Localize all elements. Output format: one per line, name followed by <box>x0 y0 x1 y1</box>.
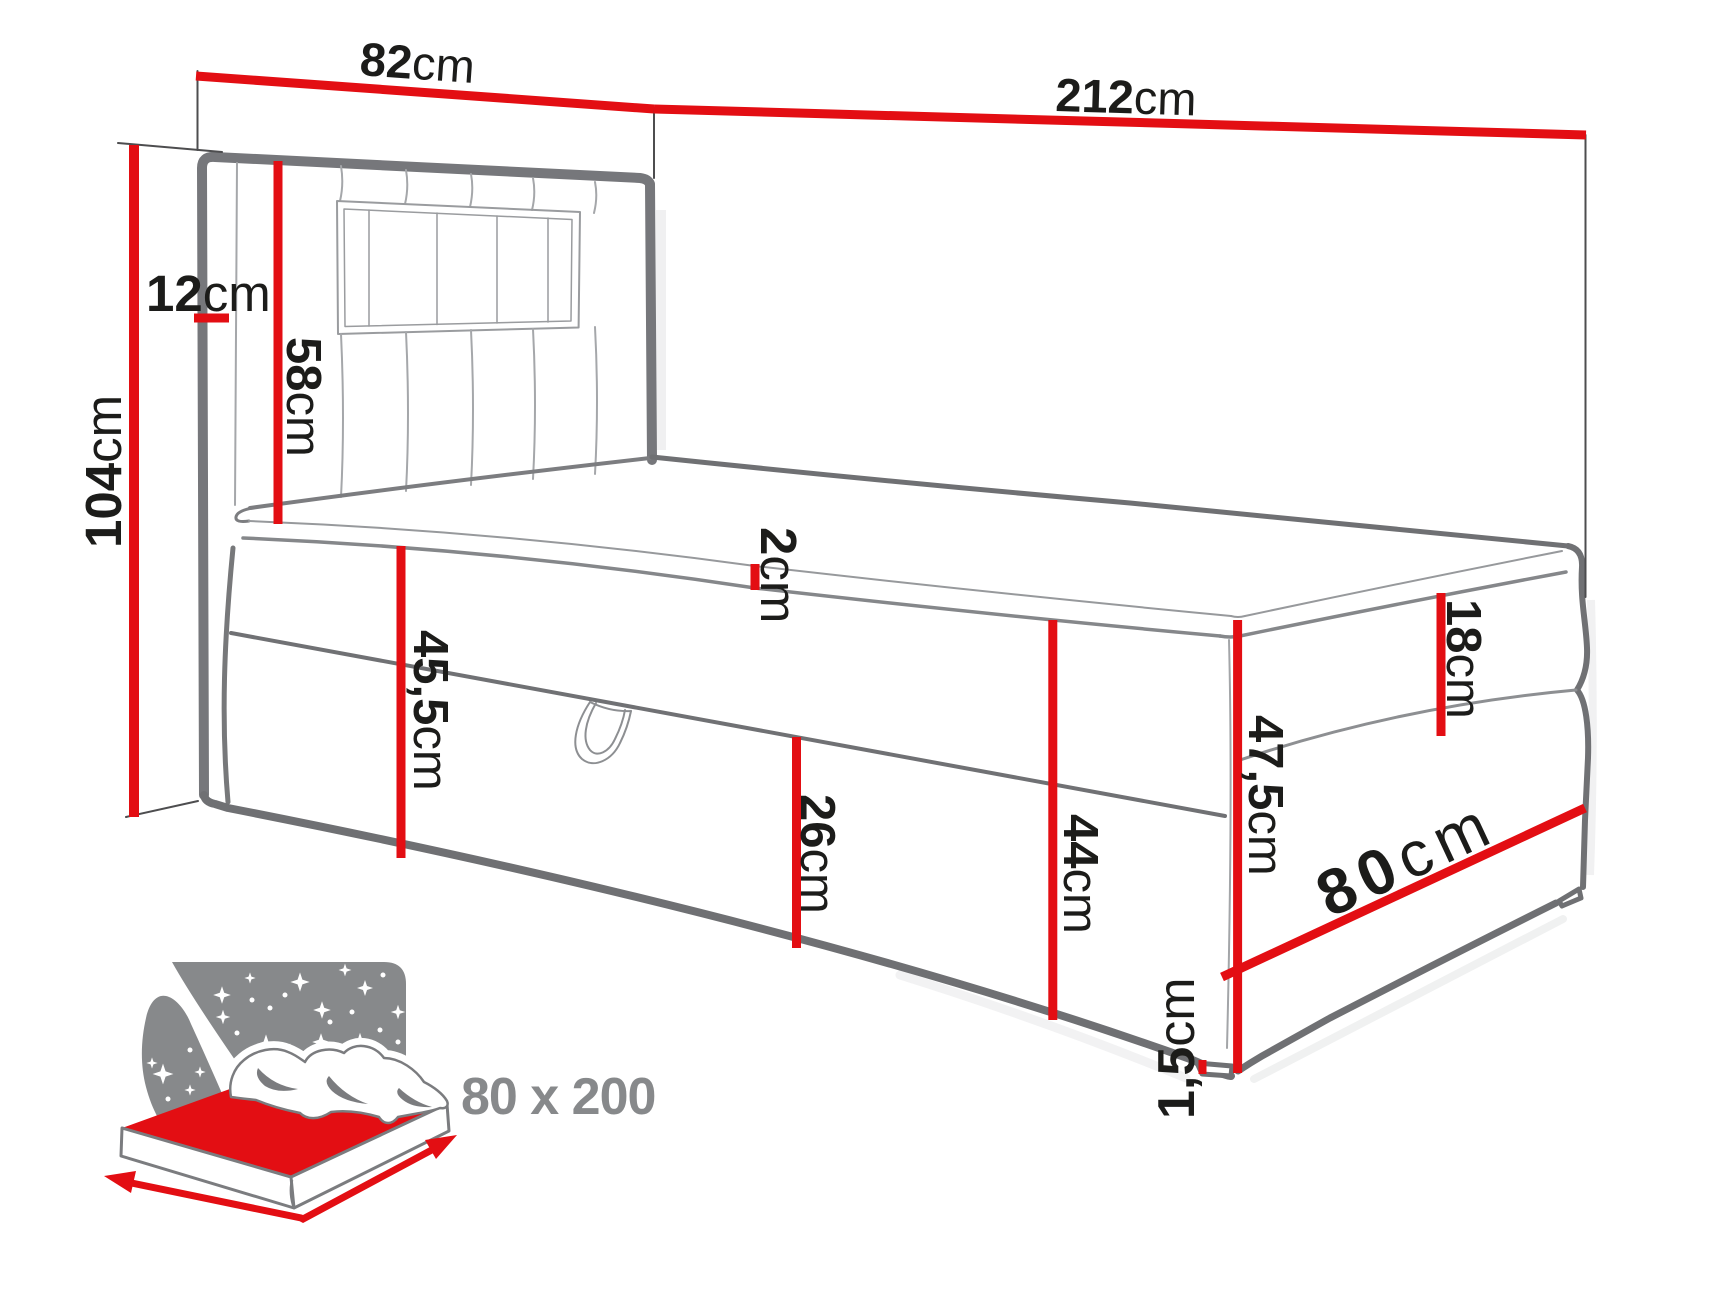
svg-text:47,5cm: 47,5cm <box>1238 715 1292 876</box>
svg-text:2cm: 2cm <box>750 527 807 623</box>
svg-text:104cm: 104cm <box>75 395 132 548</box>
svg-text:45,5cm: 45,5cm <box>403 630 457 791</box>
svg-text:12cm: 12cm <box>146 265 271 322</box>
svg-text:58cm: 58cm <box>276 337 330 457</box>
svg-text:1,5cm: 1,5cm <box>1148 977 1206 1119</box>
svg-text:82cm: 82cm <box>358 32 476 93</box>
svg-text:26cm: 26cm <box>790 794 844 914</box>
svg-text:80 x 200: 80 x 200 <box>461 1068 655 1126</box>
svg-text:18cm: 18cm <box>1436 599 1490 719</box>
svg-text:80cm: 80cm <box>1305 786 1506 931</box>
svg-text:44cm: 44cm <box>1053 814 1107 934</box>
svg-text:212cm: 212cm <box>1055 68 1198 125</box>
